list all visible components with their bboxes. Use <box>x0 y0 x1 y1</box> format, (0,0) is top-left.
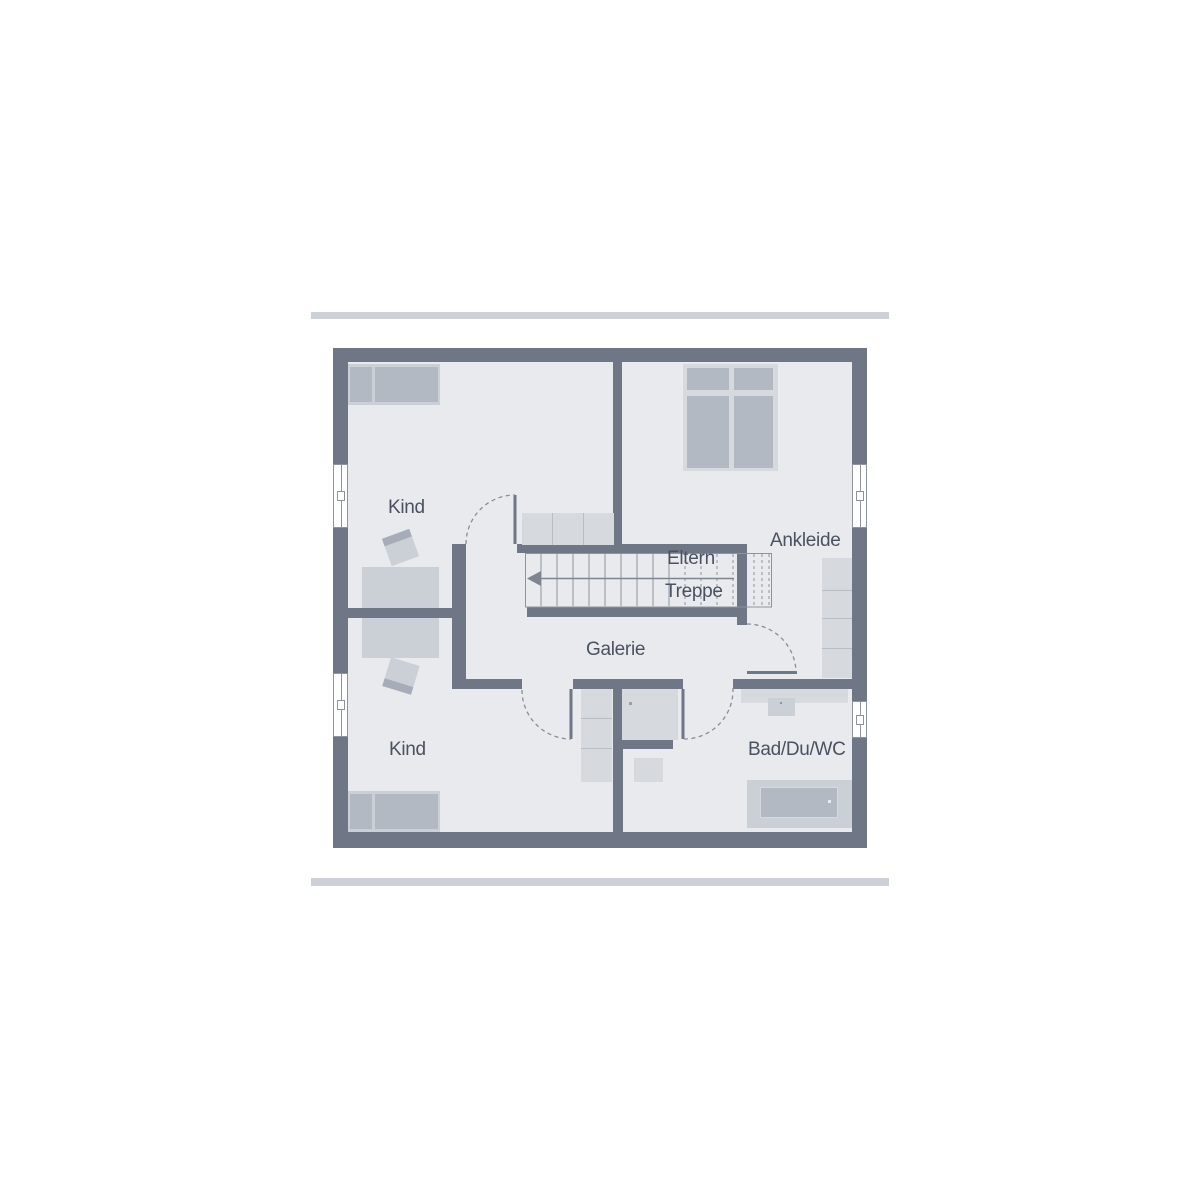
outer-wall-right <box>852 362 867 832</box>
window-handle <box>337 700 345 710</box>
window-handle <box>856 491 864 501</box>
room-label-kind-top: Kind <box>388 498 425 517</box>
wall-galerie-bottom-mid <box>573 679 683 689</box>
bed-eltern-mattress-right <box>734 396 773 468</box>
room-label-bad: Bad/Du/WC <box>748 740 846 759</box>
wall-kind-eltern <box>613 362 622 545</box>
desk-kind-bottom <box>362 618 439 658</box>
room-label-kind-bottom: Kind <box>389 740 426 759</box>
closet-kind-bottom <box>581 689 612 782</box>
bathtub-inner <box>760 787 838 818</box>
window-handle <box>856 715 864 725</box>
sideboard-divider <box>552 513 553 545</box>
wall-bad-top <box>733 679 852 689</box>
room-label-treppe: Treppe <box>665 582 723 601</box>
room-label-eltern: Eltern <box>667 549 715 568</box>
room-label-galerie: Galerie <box>586 640 645 659</box>
bed-eltern-mattress-left <box>687 396 729 468</box>
wall-shower-stub <box>623 740 673 749</box>
sideboard-divider <box>583 513 584 545</box>
wardrobe-divider <box>822 648 852 649</box>
room-label-ankleide: Ankleide <box>770 531 840 550</box>
window-right-top <box>852 464 867 528</box>
window-left-top <box>333 464 348 528</box>
wc <box>634 758 663 782</box>
floor-plan-page: Kind Eltern Ankleide Treppe Galerie Kind… <box>0 0 1200 1200</box>
sink <box>768 698 795 716</box>
window-handle <box>337 491 345 501</box>
bed-kind-top-pillow <box>350 367 372 402</box>
shower <box>622 689 678 740</box>
wardrobe-divider <box>822 618 852 619</box>
window-right-bottom <box>852 701 867 738</box>
outer-wall-left <box>333 362 348 832</box>
outer-wall-top <box>333 348 867 362</box>
bed-kind-bottom-pillow <box>350 794 372 829</box>
bathtub-drain <box>828 800 831 803</box>
closet-divider <box>581 718 612 719</box>
window-left-bottom <box>333 673 348 737</box>
wall-galerie-bottom-left <box>452 679 522 689</box>
wall-stairs-bottom <box>527 607 737 617</box>
wall-stairwell-right <box>737 544 747 625</box>
wall-galerie-left <box>452 544 466 687</box>
wall-kind-divider <box>348 608 452 618</box>
sink-tap <box>780 702 782 704</box>
bed-kind-bottom-mattress <box>375 794 438 829</box>
closet-divider <box>581 748 612 749</box>
shower-drain <box>629 702 632 705</box>
bed-kind-top-mattress <box>375 367 438 402</box>
decor-bar-bottom <box>311 878 889 886</box>
decor-bar-top <box>311 312 889 319</box>
desk-kind-top <box>362 567 439 608</box>
outer-wall-bottom <box>333 832 867 848</box>
bed-eltern-pillow-right <box>734 368 773 390</box>
sideboard-galerie <box>522 513 614 545</box>
wardrobe-divider <box>822 590 852 591</box>
bed-eltern-pillow-left <box>687 368 729 390</box>
